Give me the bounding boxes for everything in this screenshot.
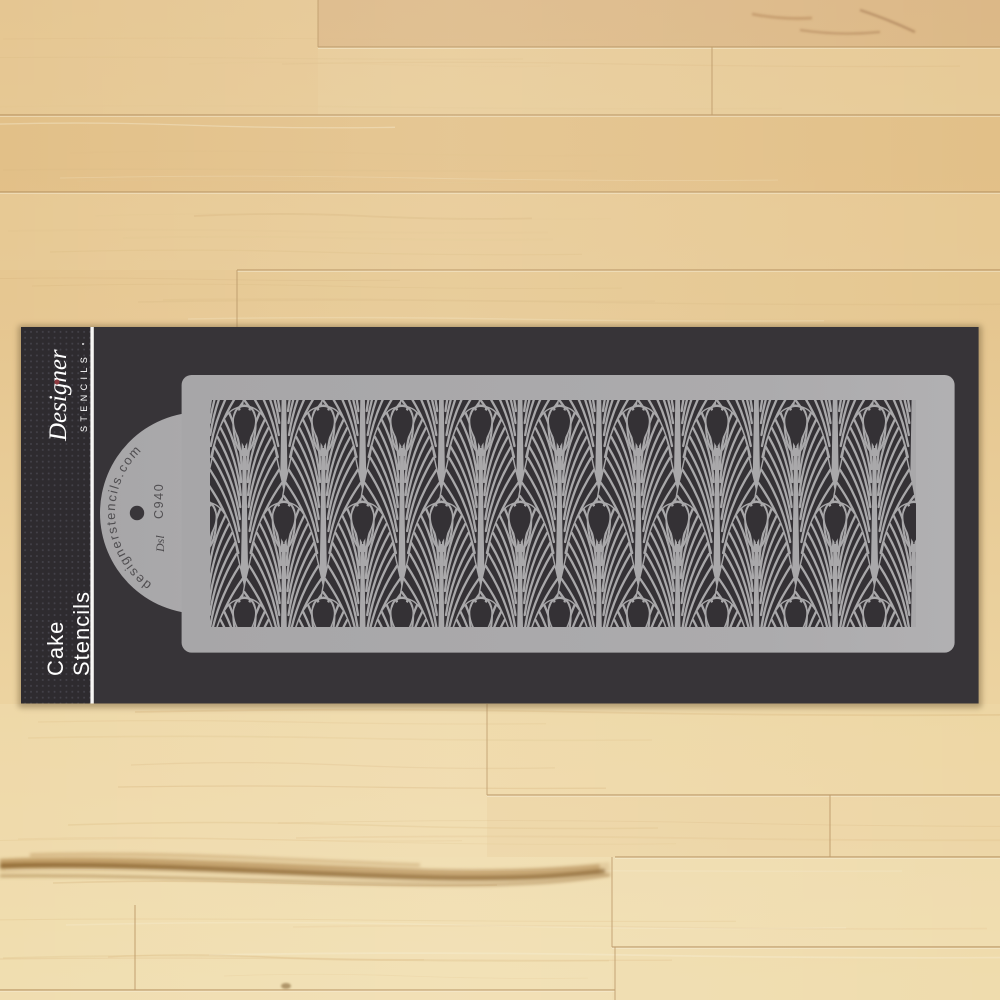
svg-text:Designer: Designer bbox=[45, 349, 72, 442]
svg-text:Cake: Cake bbox=[43, 621, 68, 676]
svg-text:Stencils: Stencils bbox=[69, 591, 94, 676]
svg-text:Dsl: Dsl bbox=[153, 535, 167, 553]
svg-text:C940: C940 bbox=[152, 483, 166, 519]
svg-text:STENCILS: STENCILS bbox=[79, 353, 89, 432]
